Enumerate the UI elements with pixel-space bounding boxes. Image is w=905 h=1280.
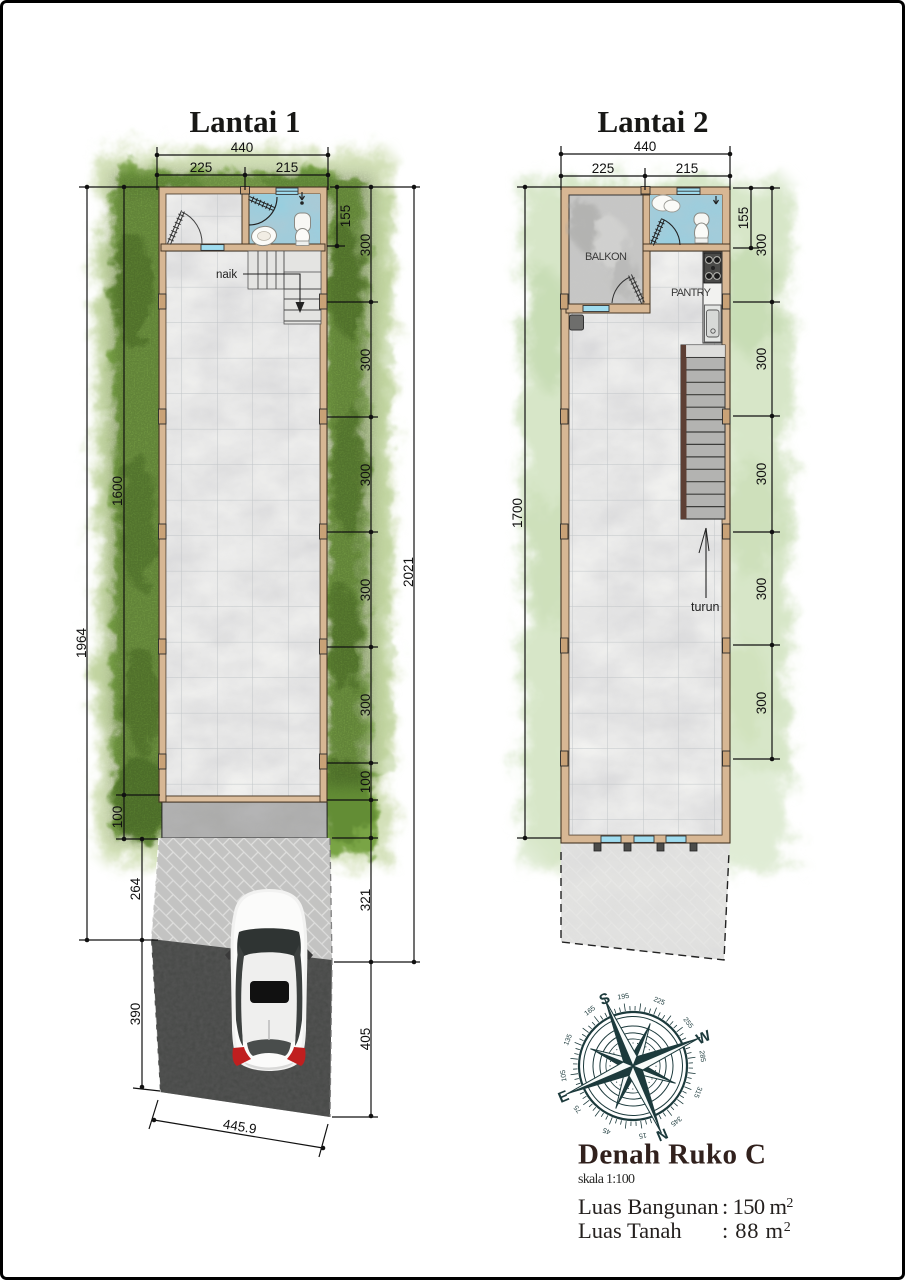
svg-text:215: 215	[276, 160, 299, 175]
svg-text:skala 1:100: skala 1:100	[578, 1172, 635, 1187]
svg-text:Denah Ruko C: Denah Ruko C	[578, 1139, 766, 1171]
svg-text:300: 300	[754, 234, 769, 257]
svg-text:300: 300	[358, 579, 373, 602]
svg-text:turun: turun	[691, 600, 720, 614]
svg-text:1600: 1600	[110, 476, 125, 506]
svg-text:300: 300	[754, 463, 769, 486]
svg-text:225: 225	[190, 160, 213, 175]
svg-text:405: 405	[358, 1028, 373, 1051]
svg-text:225: 225	[592, 161, 615, 176]
svg-text:390: 390	[128, 1003, 143, 1026]
svg-text:1964: 1964	[74, 627, 89, 658]
svg-text:155: 155	[736, 207, 751, 230]
svg-text:321: 321	[358, 889, 373, 912]
svg-text:300: 300	[358, 694, 373, 717]
svg-text:300: 300	[754, 692, 769, 715]
svg-text:Luas Bangunan: 150 m2: Luas Bangunan: 150 m2	[578, 1194, 793, 1219]
svg-text:440: 440	[634, 139, 657, 154]
svg-text:100: 100	[110, 806, 125, 829]
svg-text:1700: 1700	[510, 498, 525, 528]
svg-text:300: 300	[358, 349, 373, 372]
svg-text:BALKON: BALKON	[585, 251, 627, 263]
svg-text:Lantai 1: Lantai 1	[189, 104, 300, 139]
svg-text:155: 155	[338, 205, 353, 228]
svg-text:300: 300	[754, 348, 769, 371]
svg-text:naik: naik	[216, 269, 237, 281]
svg-text:PANTRY: PANTRY	[671, 287, 712, 299]
svg-text:300: 300	[754, 578, 769, 601]
svg-text:2021: 2021	[401, 557, 416, 587]
svg-text:264: 264	[128, 877, 143, 900]
svg-text:300: 300	[358, 464, 373, 487]
svg-text:Lantai 2: Lantai 2	[597, 104, 708, 139]
svg-text:215: 215	[676, 161, 699, 176]
svg-text:440: 440	[231, 140, 254, 155]
svg-text:300: 300	[358, 234, 373, 257]
svg-text:100: 100	[358, 771, 373, 794]
